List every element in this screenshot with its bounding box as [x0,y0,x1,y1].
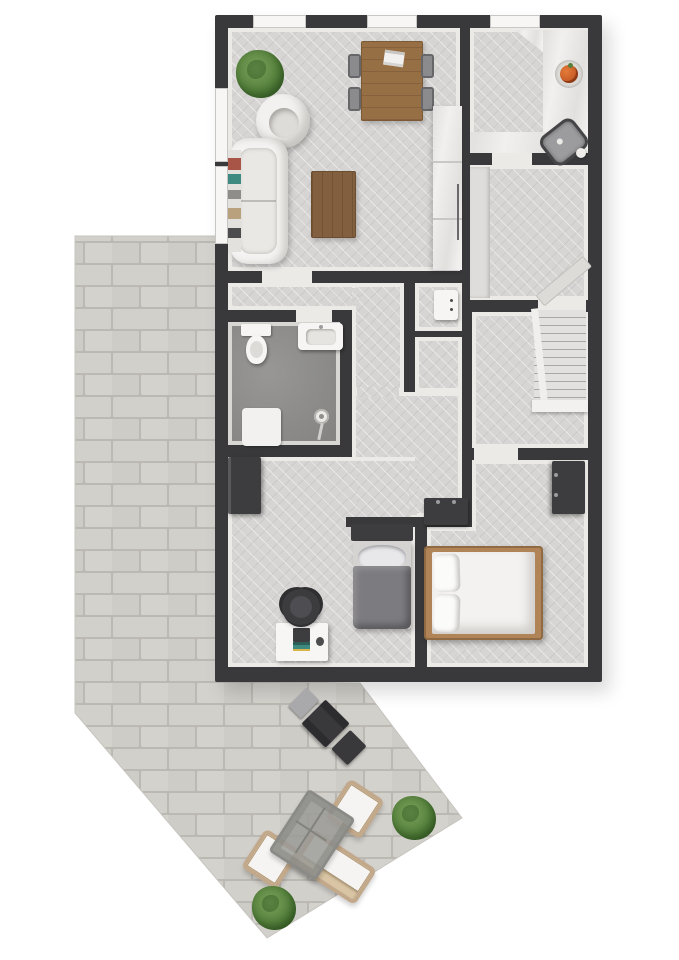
wardrobe-handle [554,473,558,477]
tall-cabinet [433,106,462,270]
window [367,15,417,28]
dining-chair [421,54,434,78]
armchair-seat [269,108,299,138]
side-counter [470,167,490,298]
boiler-unit [434,290,458,320]
window [215,166,228,244]
corridor-upper-floor [352,283,404,392]
sofa-cushion-divider [240,200,276,202]
toilet-seat [250,341,263,358]
staircase-landing [532,400,588,412]
dining-chair [348,87,361,111]
wardrobe [552,461,585,514]
wardrobe-handle [554,493,558,497]
dining-chair [348,54,361,78]
desk-chair [282,589,320,625]
dining-table [361,41,423,121]
book [228,158,241,170]
sink-faucet [576,148,586,158]
wall-hung-sink [298,323,343,350]
book [228,228,241,238]
cabinet-knob [452,500,456,504]
single-bed-headboard [351,524,413,541]
fruit-bowl [555,60,583,88]
potted-plant [252,886,296,930]
shower-head-center [319,414,324,419]
boiler-knob [450,299,453,302]
potted-plant [392,796,436,840]
cabinet-knob [436,500,440,504]
boiler-knob [450,308,453,311]
doorway-bedroom-master [474,448,518,460]
floor-patch [349,461,357,513]
mouse [316,637,324,646]
cabinet-handle [457,184,459,240]
sink-tap [319,325,323,329]
low-cabinet [424,498,468,525]
floor-patch [352,288,359,306]
doorway-bathroom [296,310,332,322]
laptop-keyboard [293,642,310,651]
shower-head [314,409,329,424]
toilet-bowl [246,335,267,364]
pillow [433,594,460,633]
desk-chair-seat [290,596,312,618]
cabinet-shelf-line [433,161,462,163]
window [490,15,540,28]
window [253,15,306,28]
gray-duvet [353,566,411,629]
book [228,208,241,219]
doorway-living-hall [262,271,312,283]
floor-plan-canvas [0,0,679,960]
fruit-leaf [568,63,573,68]
floor-patch [409,461,417,515]
floor-patch [357,387,399,397]
doorway-kitchen [492,153,532,165]
book [228,174,241,184]
wardrobe [228,457,261,514]
table-glass-line [295,807,326,853]
closet-lower-floor [415,337,462,392]
magazine [383,50,405,68]
sink-basin [306,329,336,345]
potted-plant [236,50,284,98]
bookshelf [228,150,241,252]
laptop [293,628,310,642]
desk [276,623,328,661]
book [228,190,241,199]
window [215,88,228,162]
coffee-table [311,171,356,238]
pillow [433,554,460,593]
double-bed-frame [424,546,543,640]
shower-mat [242,408,281,446]
sink-drain [556,137,564,145]
